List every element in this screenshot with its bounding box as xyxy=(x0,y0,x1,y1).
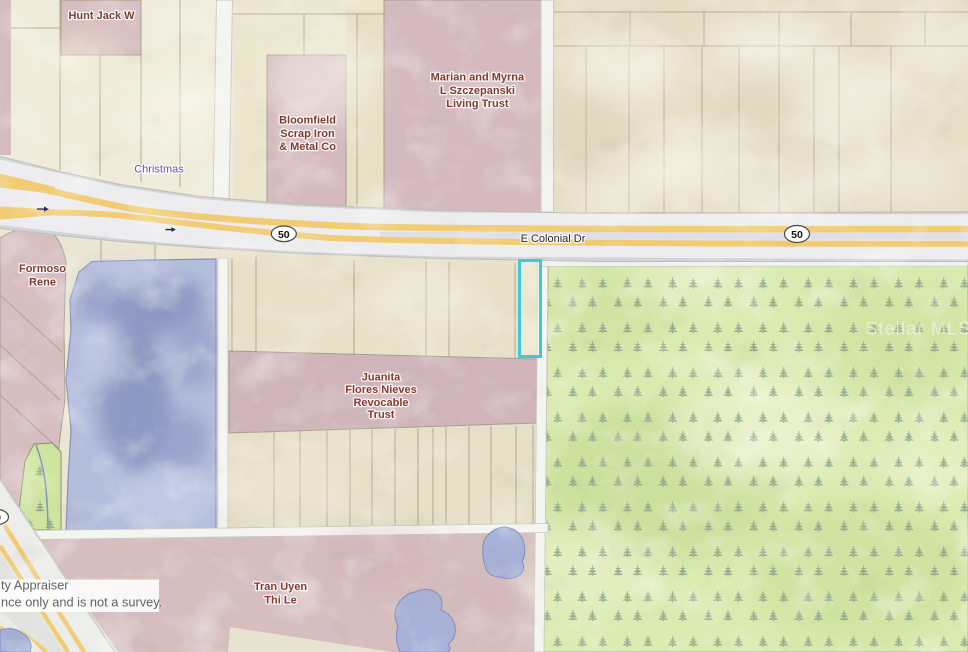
svg-text:E Colonial Dr: E Colonial Dr xyxy=(521,233,586,245)
svg-text:Christmas: Christmas xyxy=(134,164,184,176)
svg-text:Trust: Trust xyxy=(368,409,395,421)
svg-text:0: 0 xyxy=(0,512,1,524)
svg-text:Stellar MLS: Stellar MLS xyxy=(865,318,968,339)
svg-text:Rene: Rene xyxy=(29,277,56,289)
svg-text:Living Trust: Living Trust xyxy=(446,98,509,110)
svg-text:Tran Uyen: Tran Uyen xyxy=(254,581,307,593)
svg-text:50: 50 xyxy=(278,229,290,241)
svg-text:ty Appraiser: ty Appraiser xyxy=(1,578,69,593)
svg-text:Thi Le: Thi Le xyxy=(264,595,296,607)
svg-text:Juanita: Juanita xyxy=(362,372,401,384)
svg-text:nce only and is not a survey.: nce only and is not a survey. xyxy=(1,595,162,610)
svg-text:Scrap Iron: Scrap Iron xyxy=(280,128,335,140)
svg-text:& Metal Co: & Metal Co xyxy=(279,141,336,153)
svg-text:Formoso: Formoso xyxy=(19,263,66,275)
svg-text:Revocable: Revocable xyxy=(353,397,408,409)
svg-text:Bloomfield: Bloomfield xyxy=(279,115,336,127)
svg-text:Flores Nieves: Flores Nieves xyxy=(345,384,417,396)
svg-text:Hunt Jack W: Hunt Jack W xyxy=(68,10,135,22)
svg-text:L Szczepanski: L Szczepanski xyxy=(440,85,515,97)
svg-text:50: 50 xyxy=(791,229,803,241)
svg-text:Marian and Myrna: Marian and Myrna xyxy=(431,72,525,84)
